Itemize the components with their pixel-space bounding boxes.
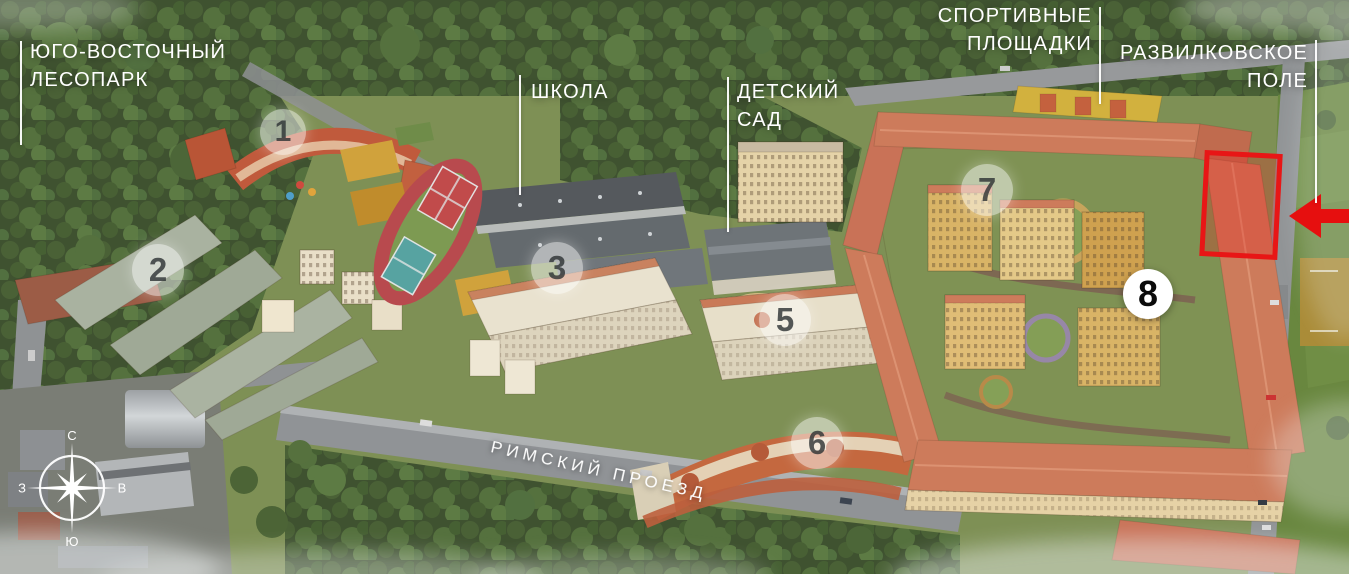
label-field-line1: РАЗВИЛКОВСКОЕ: [1120, 39, 1308, 67]
label-sports-line1: СПОРТИВНЫЕ: [938, 2, 1092, 30]
compass-west-label: З: [18, 481, 26, 496]
building-marker-7[interactable]: 7: [961, 164, 1013, 216]
building-marker-6[interactable]: 6: [791, 417, 843, 469]
label-line-sports: [1099, 7, 1101, 104]
label-forest-line2: ЛЕСОПАРК: [30, 66, 226, 94]
label-forest-line1: ЮГО-ВОСТОЧНЫЙ: [30, 38, 226, 66]
pointer-arrow: [1285, 190, 1349, 242]
label-sports: СПОРТИВНЫЕ ПЛОЩАДКИ: [938, 2, 1092, 58]
label-line-forest: [20, 41, 22, 145]
compass-north-label: С: [67, 428, 76, 443]
label-kindergarten-line2: САД: [737, 106, 839, 134]
building-marker-3[interactable]: 3: [531, 242, 583, 294]
building-marker-5[interactable]: 5: [759, 294, 811, 346]
label-forest: ЮГО-ВОСТОЧНЫЙ ЛЕСОПАРК: [30, 38, 226, 94]
label-line-field: [1315, 40, 1317, 203]
pointer-arrow-shape: [1289, 194, 1349, 238]
label-field-line2: ПОЛЕ: [1120, 67, 1308, 95]
building-marker-1[interactable]: 1: [260, 109, 306, 155]
compass-south-label: Ю: [65, 534, 78, 549]
label-school: ШКОЛА: [531, 78, 609, 106]
label-line-kindergarten: [727, 77, 729, 232]
compass-east-label: В: [118, 481, 127, 496]
label-sports-line2: ПЛОЩАДКИ: [938, 30, 1092, 58]
building-marker-2[interactable]: 2: [132, 244, 184, 296]
building-marker-8[interactable]: 8: [1123, 269, 1173, 319]
highlighted-building-outline[interactable]: [1199, 150, 1282, 260]
masterplan-map: 1 2 3 5 6 7 8 ЮГО-ВОСТОЧНЫЙ ЛЕСОПАРК ШКО…: [0, 0, 1349, 574]
label-kindergarten-line1: ДЕТСКИЙ: [737, 78, 839, 106]
label-school-line1: ШКОЛА: [531, 78, 609, 106]
label-kindergarten: ДЕТСКИЙ САД: [737, 78, 839, 134]
compass-star: [27, 443, 117, 533]
label-field: РАЗВИЛКОВСКОЕ ПОЛЕ: [1120, 39, 1308, 95]
label-line-school: [519, 75, 521, 195]
compass-rose: С Ю З В: [14, 428, 130, 550]
